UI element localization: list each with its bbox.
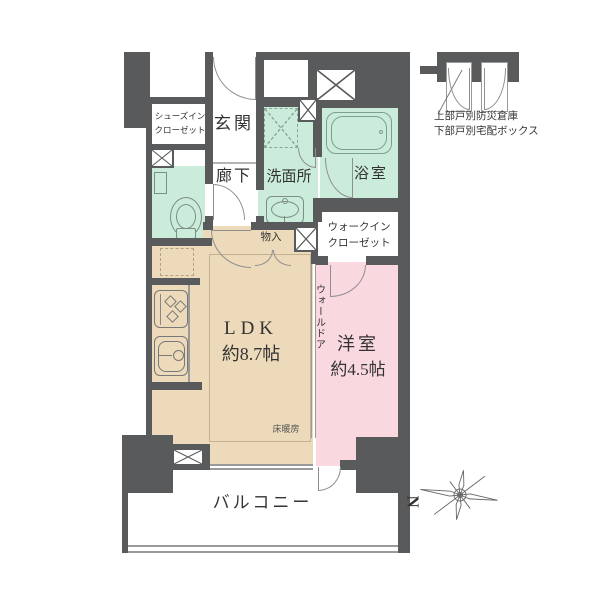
decorative-shape [152,150,172,166]
wall-segment [146,382,202,390]
decorative-shape [296,228,316,250]
pillar [356,437,410,493]
hallway-label: 廊下 [207,167,261,187]
wall-segment [316,198,400,212]
decorative-shape: ウォークイン [328,222,391,233]
compass-north-label: N [402,491,423,513]
balcony-label: バルコニー [180,492,345,513]
decorative-shape: クローゼット [328,238,391,249]
decorative-shape: LDK [224,318,278,339]
decorative-shape [174,450,202,464]
bathroom-label: 浴室 [346,165,396,184]
annex-note-line1: 上部戸別防災倉庫 [434,110,552,123]
decorative-shape [176,204,196,229]
decorative-shape: 約8.7帖 [222,344,281,364]
decorative-shape [379,130,383,134]
decorative-shape [166,310,179,323]
decorative-shape [282,198,288,204]
decorative-shape [152,150,172,166]
floor-heating-label: 床暖房 [264,424,308,435]
wall-segment [122,493,128,553]
storage-label: 物入 [250,231,292,244]
decorative-shape [154,172,167,194]
annex-note-line2: 下部戸別宅配ボックス [434,125,552,138]
wall-segment [146,278,200,285]
stove-icon [154,290,188,328]
shoes-in-closet-label: シューズイン クローゼット [151,110,209,137]
elevator-shaft [315,68,357,102]
balcony-door-arc [318,467,341,491]
refrigerator-space [160,248,194,276]
window-line [203,468,313,470]
wall-segment [508,62,519,82]
decorative-shape [174,450,202,464]
decorative-shape [173,350,184,361]
washroom-label: 洗面所 [258,168,320,187]
decorative-shape [159,355,172,356]
pipe-shaft [150,148,174,168]
kitchen-counter-line [188,285,190,383]
pipe-shaft [172,448,204,466]
decorative-shape [296,228,316,250]
decorative-shape [317,70,355,100]
decorative-shape [317,70,355,100]
delivery-box-structure [437,52,519,62]
wall-segment [203,222,213,230]
compass-rose [414,450,506,542]
wall-segment [366,256,400,265]
pipe-shaft [294,226,318,252]
kitchen-sink-icon [154,336,188,376]
decorative-shape: シューズイン [155,111,206,121]
decorative-shape: 約4.5帖 [330,360,385,379]
decorative-shape [265,109,297,147]
decorative-shape [300,100,316,120]
wall-segment [146,97,213,104]
decorative-shape [265,109,297,147]
decorative-shape [417,465,501,525]
balcony-edge-line [126,545,400,547]
decorative-shape [300,100,316,120]
wall-segment [146,238,212,246]
wall-segment [340,460,358,470]
toilet-door-arc [213,184,245,220]
entrance-label: 玄関 [207,113,261,134]
balcony-edge-line [126,551,400,553]
wall-segment [472,62,481,82]
ldk-label: LDK 約8.7帖 [196,316,306,367]
pipe-shaft [298,98,318,122]
floor-plan: N 玄関 廊下 洗面所 浴室 シューズイン クローゼット ウォークイン クローゼ… [0,0,600,600]
decorative-shape [160,294,161,325]
decorative-shape: 洋室 [337,334,379,354]
bedroom-label: 洋室 約4.5帖 [316,332,400,382]
walk-in-closet-label: ウォークイン クローゼット [320,220,398,252]
wall-door-label: ウォールドア [312,278,325,356]
washing-machine-space [264,108,298,148]
entrance-door-arc [213,57,256,100]
pillar [122,435,173,493]
decorative-shape: クローゼット [154,125,205,135]
window-line [203,464,313,466]
entrance-step-line [213,162,256,164]
